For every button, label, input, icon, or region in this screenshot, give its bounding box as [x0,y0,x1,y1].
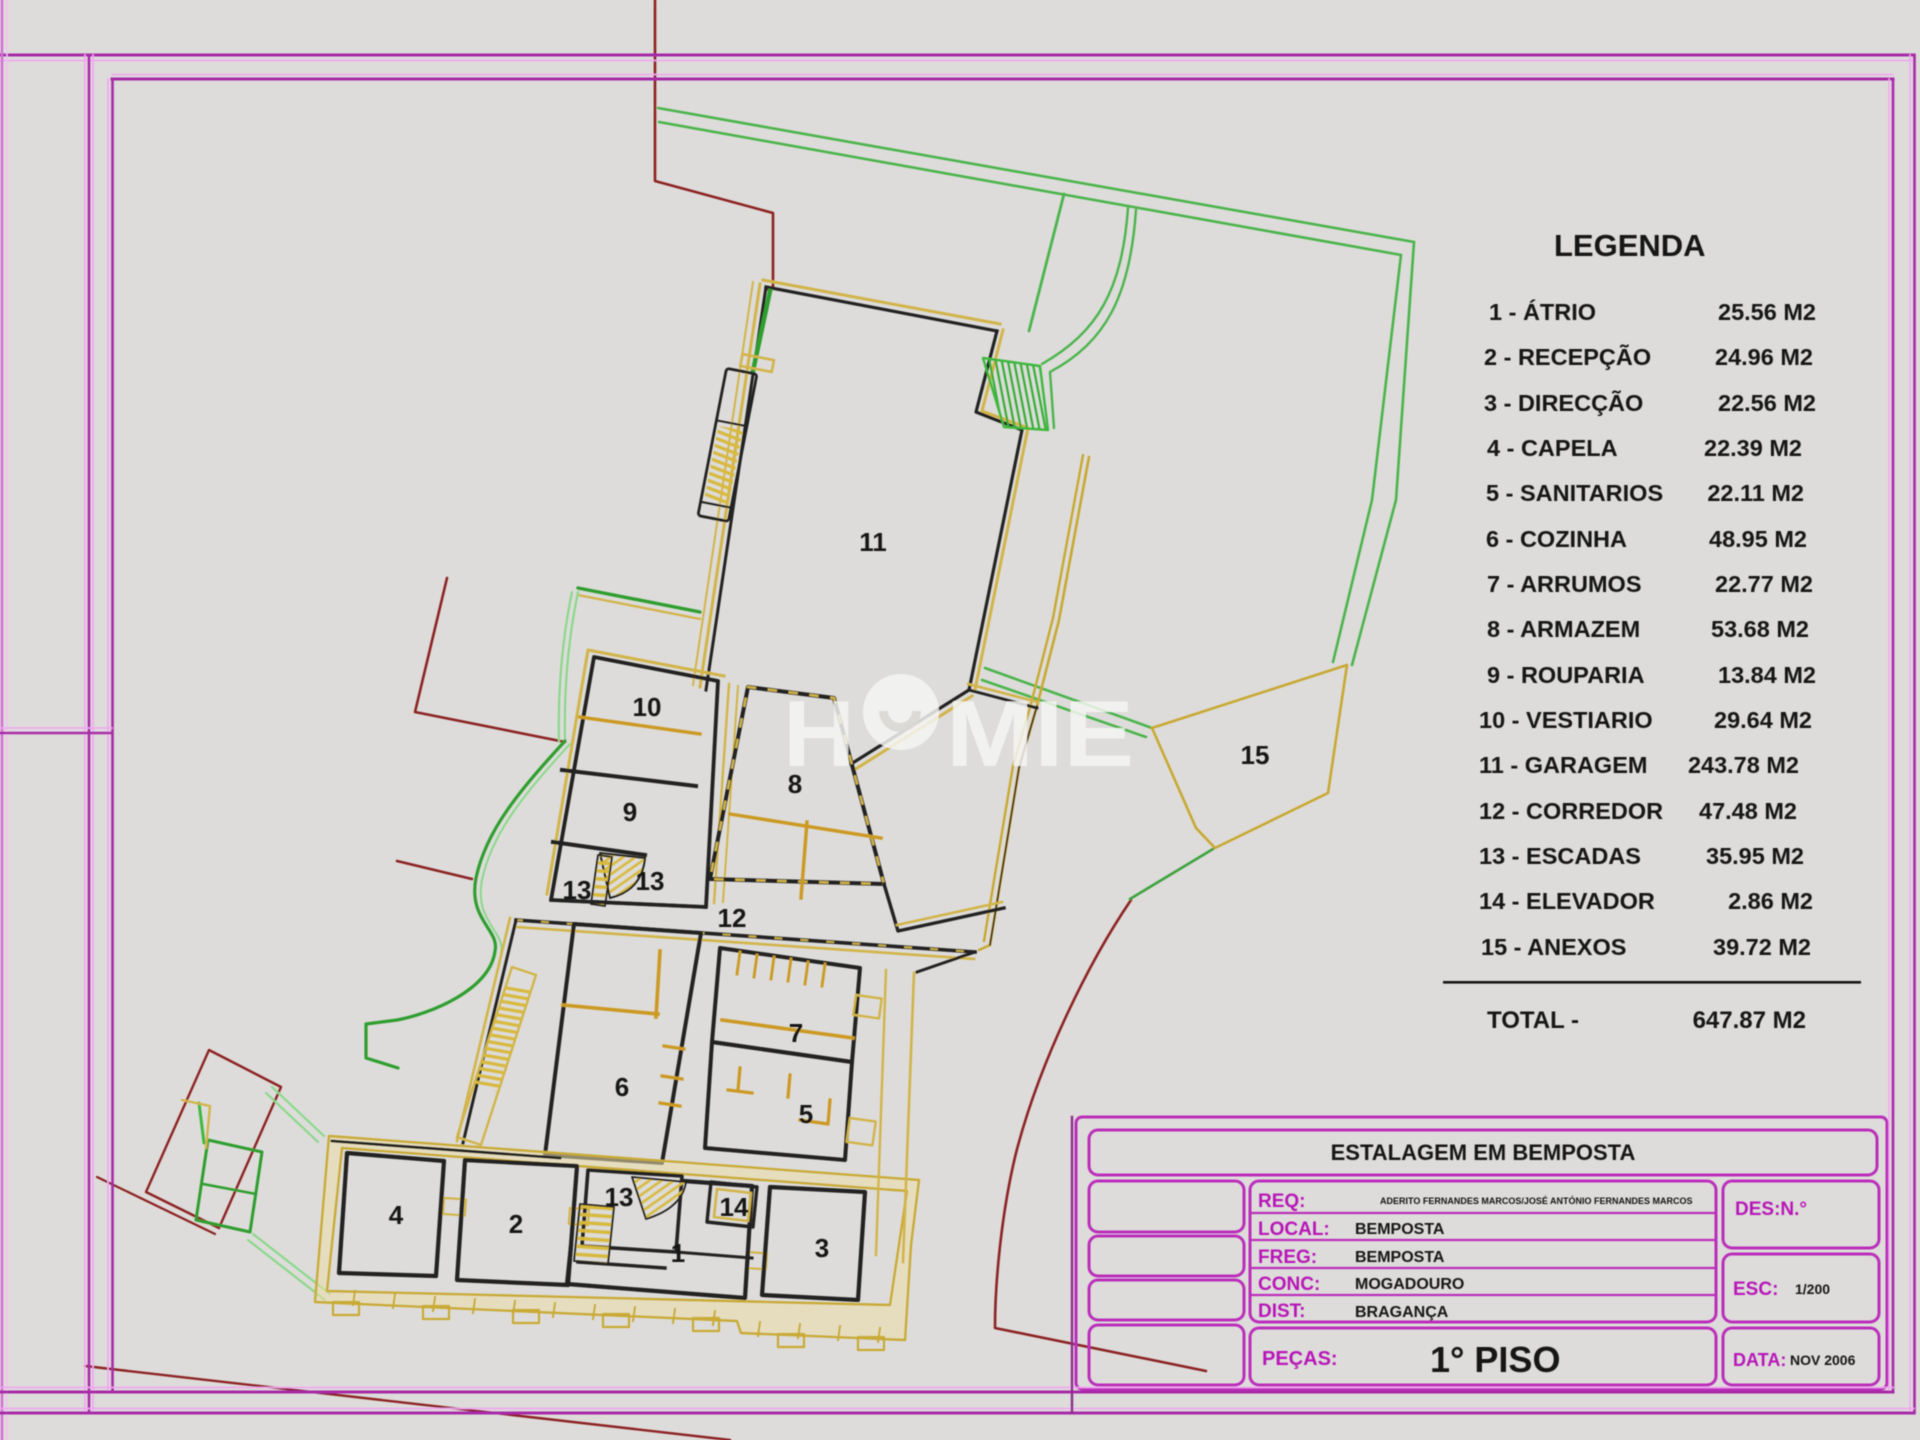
svg-text:14 - ELEVADOR: 14 - ELEVADOR [1479,888,1655,914]
svg-text:647.87 M2: 647.87 M2 [1693,1007,1806,1034]
svg-text:22.39 M2: 22.39 M2 [1704,435,1802,461]
svg-text:MIE: MIE [946,681,1134,786]
svg-text:13: 13 [636,866,665,896]
svg-text:12 - CORREDOR: 12 - CORREDOR [1479,798,1663,824]
svg-text:2: 2 [509,1209,523,1239]
svg-text:1 - ÁTRIO: 1 - ÁTRIO [1489,298,1596,325]
svg-text:BRAGANÇA: BRAGANÇA [1355,1304,1449,1321]
svg-text:13.84 M2: 13.84 M2 [1718,662,1816,688]
svg-text:53.68 M2: 53.68 M2 [1711,616,1809,642]
svg-text:H: H [783,681,855,786]
svg-text:ESC:: ESC: [1733,1279,1778,1300]
svg-text:DATA:: DATA: [1733,1350,1786,1370]
svg-text:2.86 M2: 2.86 M2 [1728,888,1813,914]
svg-text:15: 15 [1241,740,1270,770]
svg-text:NOV 2006: NOV 2006 [1790,1352,1856,1368]
svg-text:11: 11 [859,527,887,557]
svg-text:BEMPOSTA: BEMPOSTA [1355,1221,1445,1238]
svg-text:1/200: 1/200 [1795,1281,1830,1297]
svg-text:13 - ESCADAS: 13 - ESCADAS [1479,843,1641,869]
svg-text:DIST:: DIST: [1258,1301,1306,1322]
svg-text:6 - COZINHA: 6 - COZINHA [1486,526,1627,552]
svg-text:14: 14 [720,1192,749,1222]
svg-text:25.56 M2: 25.56 M2 [1718,299,1816,325]
svg-text:24.96 M2: 24.96 M2 [1715,344,1813,370]
svg-text:1: 1 [671,1238,685,1268]
svg-text:DES:N.°: DES:N.° [1735,1199,1807,1220]
svg-text:5 - SANITARIOS: 5 - SANITARIOS [1486,480,1663,506]
svg-text:8 - ARMAZEM: 8 - ARMAZEM [1487,616,1640,642]
svg-text:5: 5 [799,1099,813,1129]
svg-text:22.77 M2: 22.77 M2 [1715,571,1813,597]
svg-text:9: 9 [623,797,637,827]
svg-text:7: 7 [789,1018,803,1048]
svg-text:2 - RECEPÇÃO: 2 - RECEPÇÃO [1484,343,1651,370]
svg-text:10 - VESTIARIO: 10 - VESTIARIO [1479,707,1653,733]
svg-text:4: 4 [389,1200,404,1230]
svg-text:243.78 M2: 243.78 M2 [1688,752,1799,778]
svg-text:7 - ARRUMOS: 7 - ARRUMOS [1487,571,1642,597]
svg-text:29.64 M2: 29.64 M2 [1714,707,1812,733]
svg-text:47.48 M2: 47.48 M2 [1699,798,1797,824]
svg-text:3: 3 [815,1233,829,1263]
svg-text:15 - ANEXOS: 15 - ANEXOS [1481,934,1626,960]
svg-text:CONC:: CONC: [1258,1274,1320,1295]
svg-text:MOGADOURO: MOGADOURO [1355,1276,1464,1293]
svg-text:PEÇAS:: PEÇAS: [1262,1348,1338,1370]
svg-text:FREG:: FREG: [1258,1247,1317,1268]
svg-text:ADERITO FERNANDES MARCOS/JOSÉ: ADERITO FERNANDES MARCOS/JOSÉ ANTÓNIO FE… [1380,1195,1693,1206]
svg-text:13: 13 [563,875,592,905]
svg-text:TOTAL -: TOTAL - [1487,1007,1579,1034]
svg-text:1° PISO: 1° PISO [1430,1339,1560,1380]
svg-text:13: 13 [605,1182,634,1212]
svg-text:10: 10 [633,692,662,722]
svg-text:BEMPOSTA: BEMPOSTA [1355,1249,1445,1266]
svg-text:4 - CAPELA: 4 - CAPELA [1487,435,1618,461]
svg-text:35.95 M2: 35.95 M2 [1706,843,1804,869]
svg-text:LOCAL:: LOCAL: [1258,1219,1330,1240]
svg-text:ESTALAGEM EM BEMPOSTA: ESTALAGEM EM BEMPOSTA [1331,1140,1636,1165]
svg-text:3 - DIRECÇÃO: 3 - DIRECÇÃO [1484,389,1643,416]
svg-text:11 - GARAGEM: 11 - GARAGEM [1479,752,1647,778]
svg-text:22.11 M2: 22.11 M2 [1707,480,1804,506]
svg-text:9 - ROUPARIA: 9 - ROUPARIA [1487,662,1645,688]
svg-text:12: 12 [718,903,747,933]
svg-text:22.56 M2: 22.56 M2 [1718,390,1816,416]
svg-text:REQ:: REQ: [1258,1191,1306,1212]
svg-text:39.72 M2: 39.72 M2 [1713,934,1811,960]
svg-text:48.95 M2: 48.95 M2 [1709,526,1807,552]
svg-text:6: 6 [615,1072,629,1102]
svg-text:LEGENDA: LEGENDA [1554,228,1706,263]
